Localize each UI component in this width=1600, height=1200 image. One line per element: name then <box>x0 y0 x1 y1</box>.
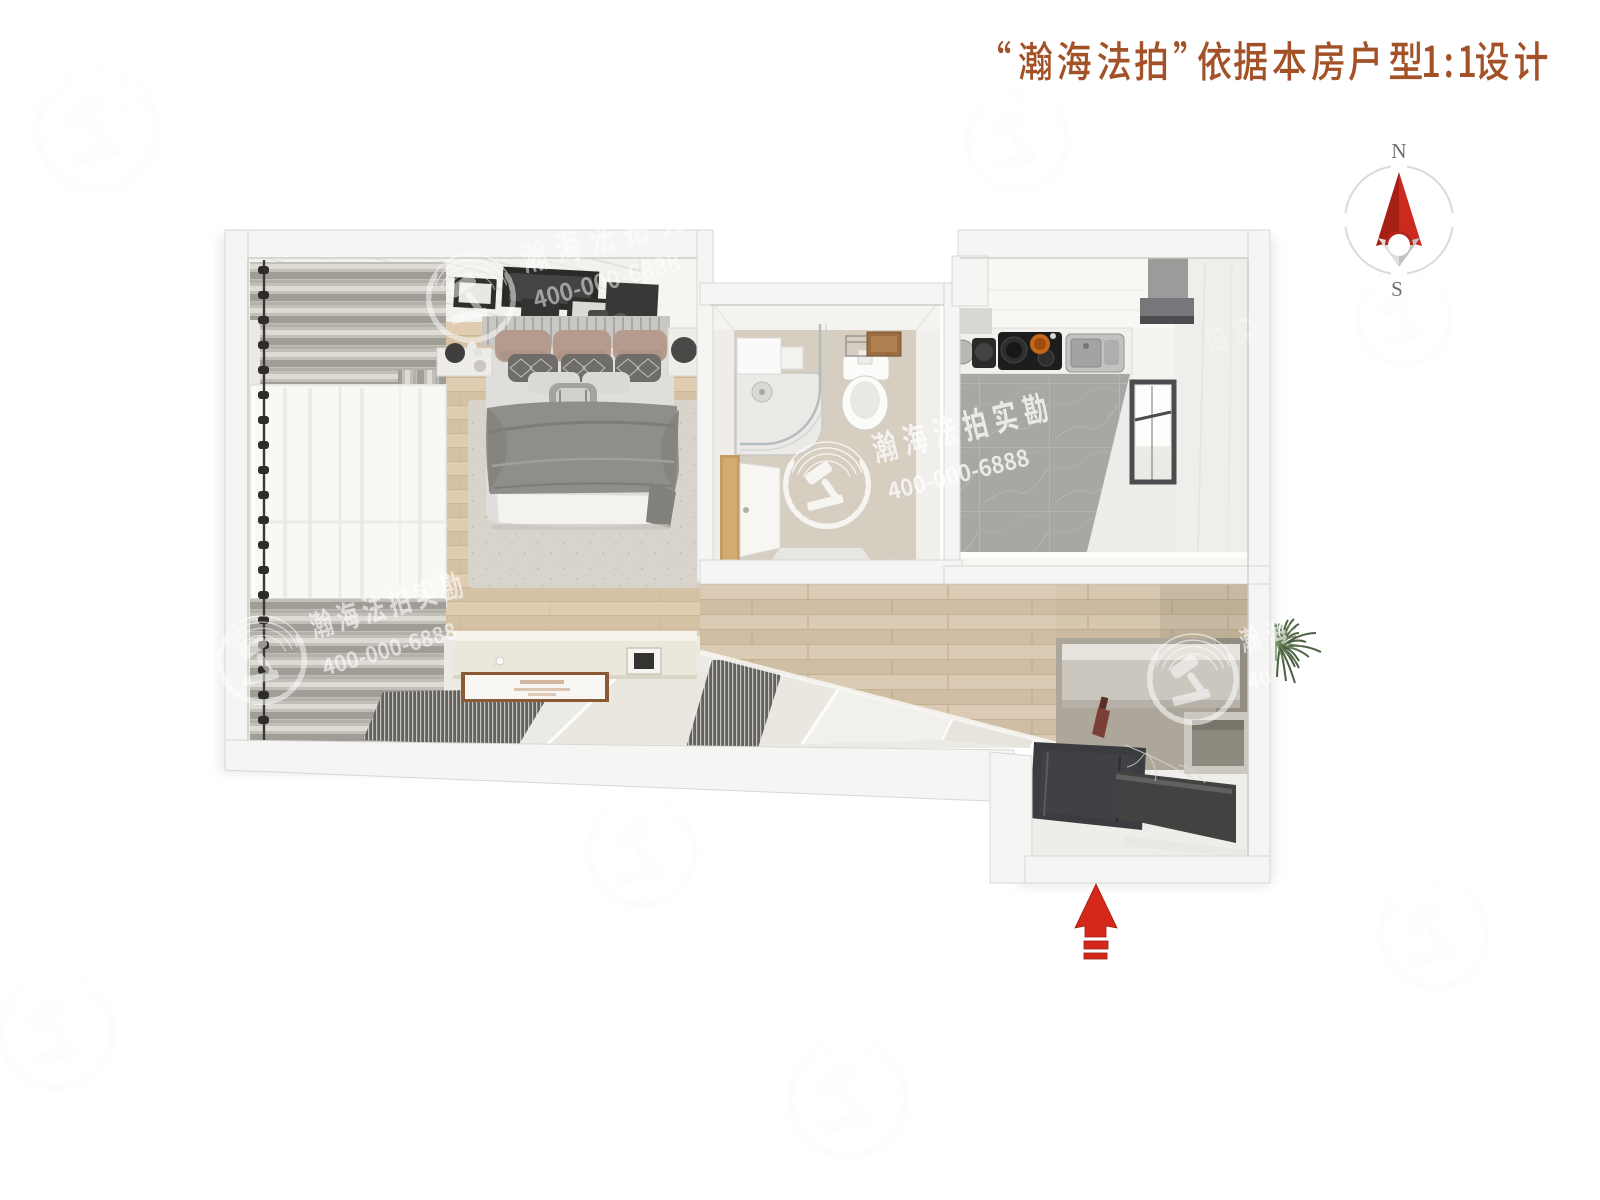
svg-text:N: N <box>1391 139 1406 163</box>
svg-text:S: S <box>1391 277 1403 301</box>
